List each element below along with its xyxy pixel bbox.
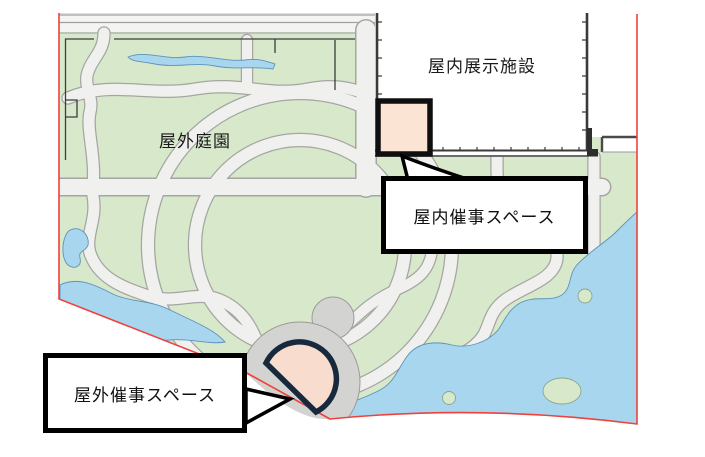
callout-outdoor-event: 屋外催事スペース xyxy=(43,353,247,433)
indoor-event-space-highlight xyxy=(378,101,430,154)
site-plan: 屋外庭園 屋内展示施設 屋内催事スペース 屋外催事スペース xyxy=(0,0,705,457)
building-step-line xyxy=(602,137,637,152)
callout-outdoor-event-label: 屋外催事スペース xyxy=(74,381,216,406)
garden-label: 屋外庭園 xyxy=(130,127,260,152)
callout-indoor-event-label: 屋内催事スペース xyxy=(414,203,556,228)
building-label: 屋内展示施設 xyxy=(392,52,572,77)
callout-indoor-event: 屋内催事スペース xyxy=(381,176,588,254)
